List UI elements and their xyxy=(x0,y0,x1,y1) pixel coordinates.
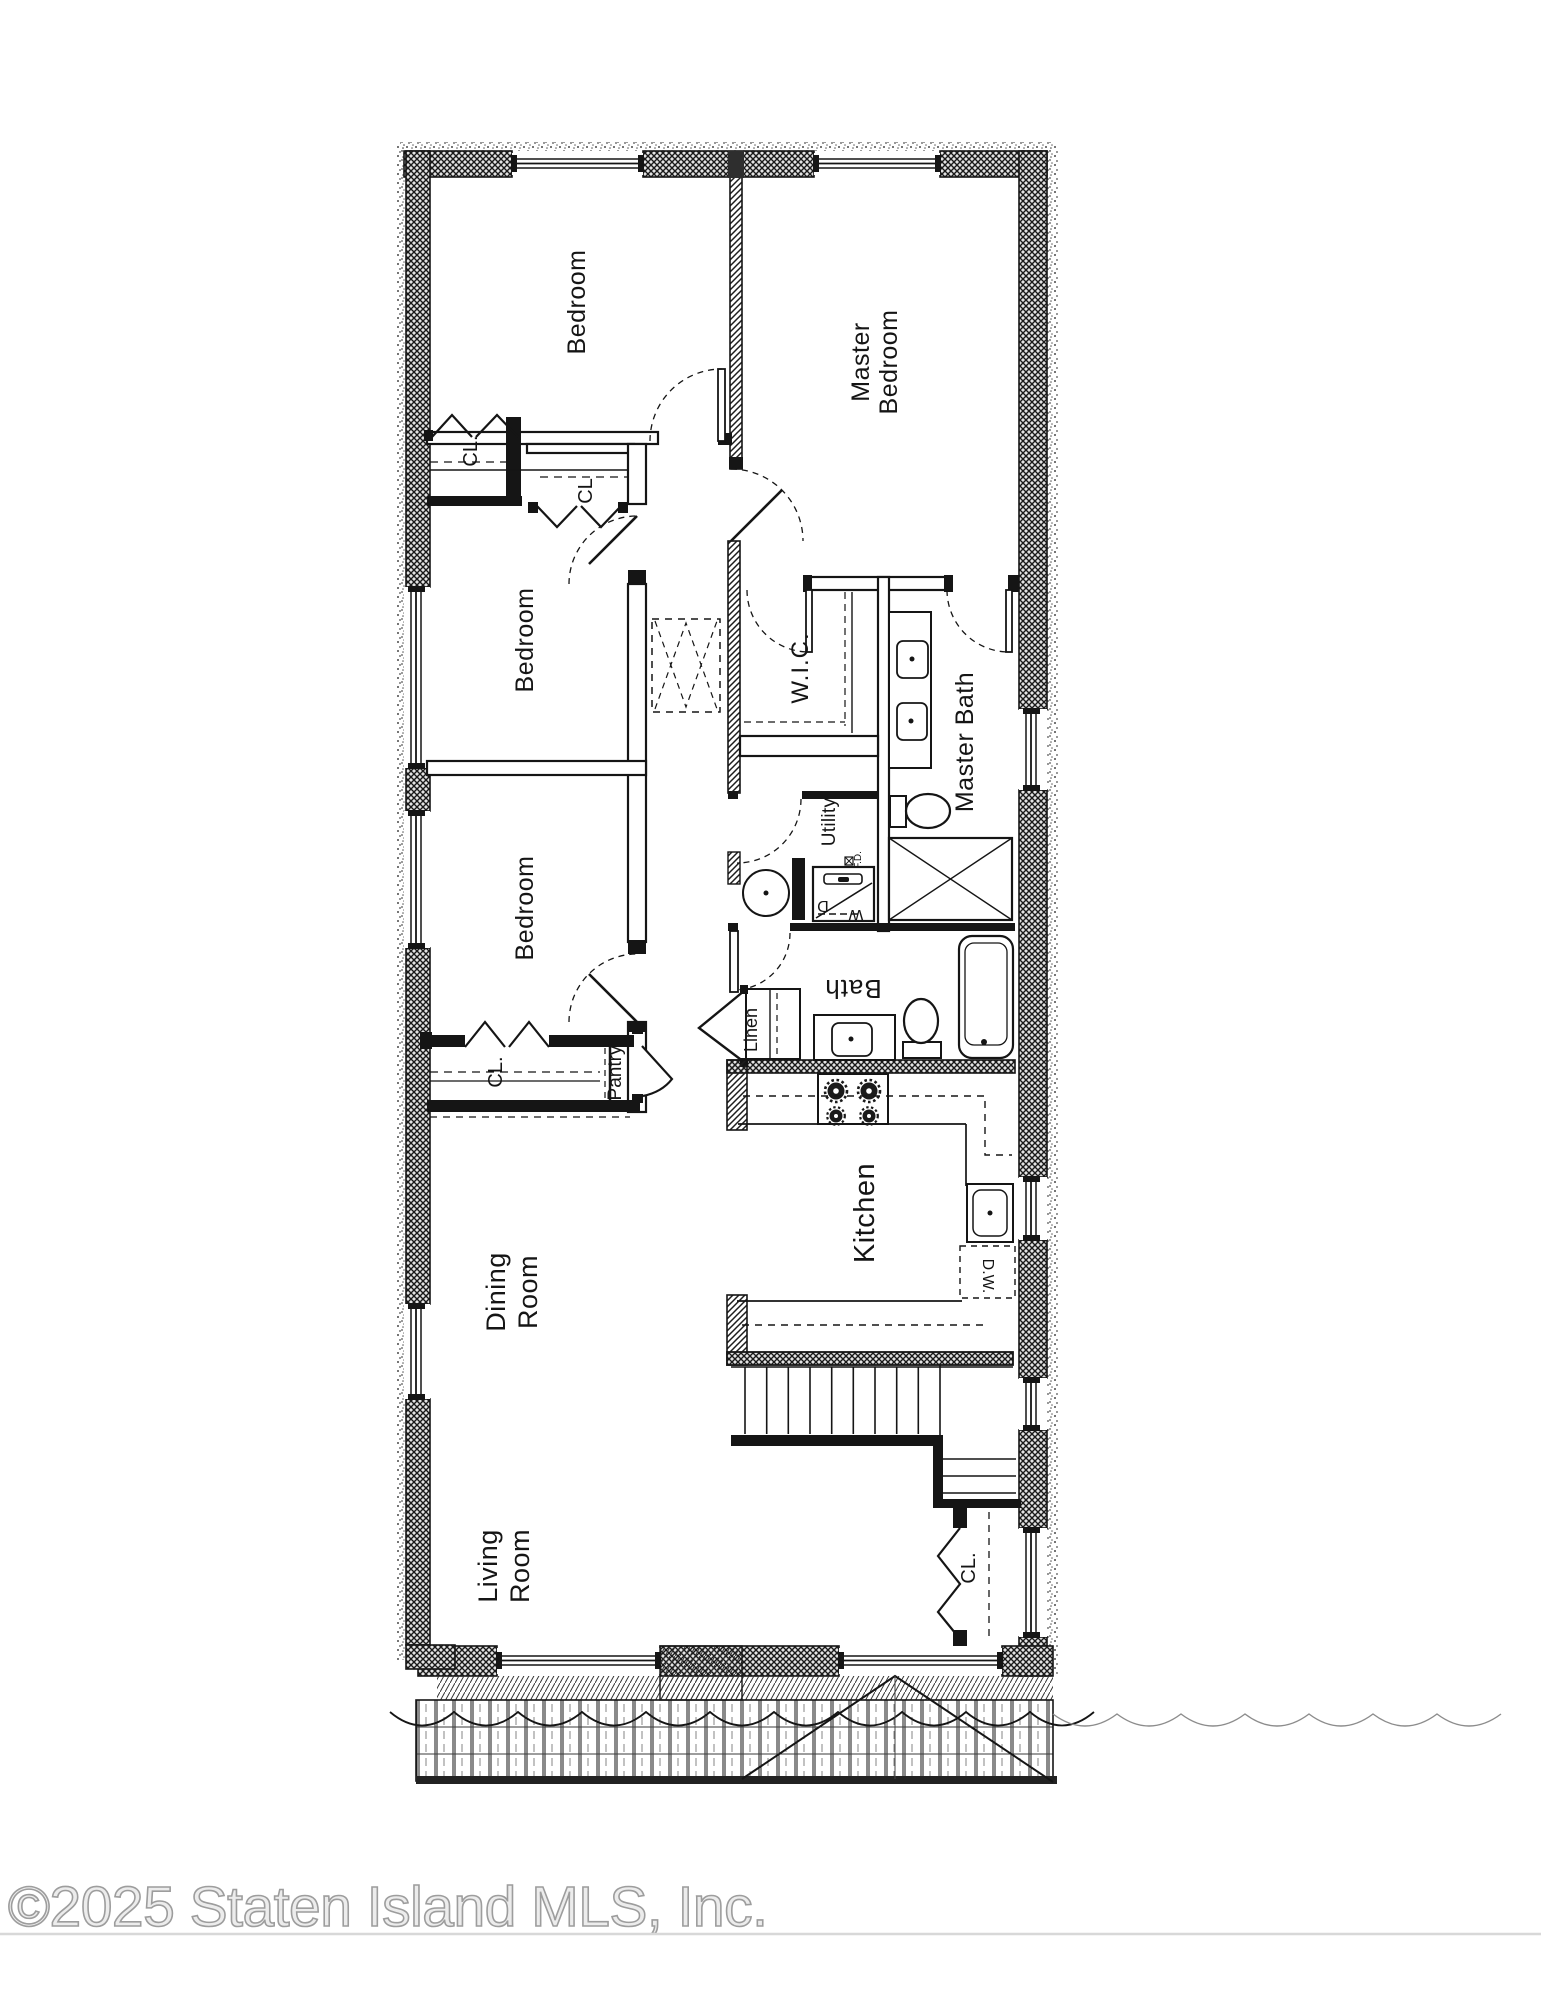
svg-text:Bedroom: Bedroom xyxy=(511,856,539,961)
svg-text:CL.: CL. xyxy=(485,1056,507,1087)
svg-text:D.W.: D.W. xyxy=(979,1259,996,1294)
svg-text:Bedroom: Bedroom xyxy=(563,250,591,355)
svg-text:CL.: CL. xyxy=(460,435,482,466)
svg-text:Bath: Bath xyxy=(824,974,882,1004)
svg-text:Living: Living xyxy=(473,1529,503,1603)
svg-text:CL.: CL. xyxy=(958,1552,980,1583)
svg-text:Bedroom: Bedroom xyxy=(875,310,903,415)
svg-text:Linen: Linen xyxy=(741,1008,761,1052)
svg-text:F.D.: F.D. xyxy=(853,851,864,869)
svg-text:Master Bath: Master Bath xyxy=(951,672,979,812)
svg-text:W: W xyxy=(848,906,864,923)
svg-text:D: D xyxy=(817,897,829,914)
svg-text:W.I.C.: W.I.C. xyxy=(787,632,814,703)
svg-text:Pantry: Pantry xyxy=(605,1045,626,1100)
svg-text:Room: Room xyxy=(505,1529,535,1603)
svg-text:Room: Room xyxy=(513,1255,543,1329)
svg-text:Dining: Dining xyxy=(481,1252,511,1332)
svg-text:CL: CL xyxy=(575,478,597,504)
svg-text:©2025 Staten Island MLS, Inc.: ©2025 Staten Island MLS, Inc. xyxy=(8,1875,767,1939)
svg-text:Kitchen: Kitchen xyxy=(849,1163,881,1263)
svg-text:Utility: Utility xyxy=(819,798,840,847)
svg-text:Master: Master xyxy=(847,322,875,401)
svg-text:Bedroom: Bedroom xyxy=(511,588,539,693)
